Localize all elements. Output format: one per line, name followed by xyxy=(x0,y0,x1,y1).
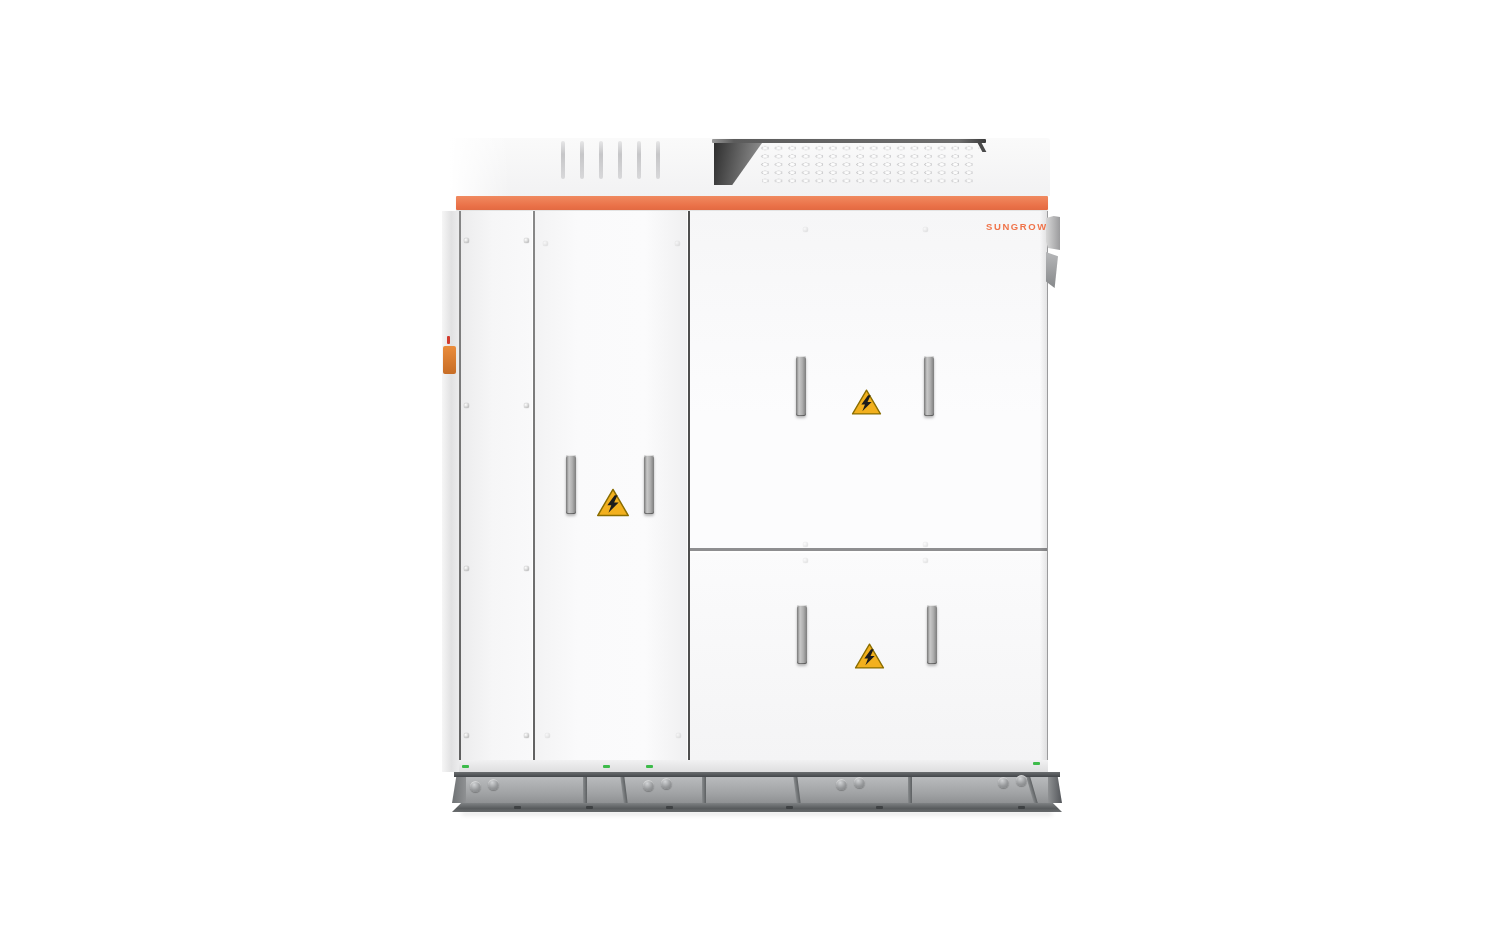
door-handle xyxy=(644,455,654,514)
vent-slat xyxy=(637,141,641,179)
green-indicator-mark xyxy=(1033,762,1040,765)
brand-logo: SUNGROW xyxy=(986,221,1044,231)
grille-shadow-wedge xyxy=(714,143,762,185)
side-red-marker xyxy=(447,336,450,344)
door-handle xyxy=(927,605,937,664)
flange-slot xyxy=(786,806,793,809)
high-voltage-warning-icon xyxy=(851,388,882,416)
bolt-hole xyxy=(998,777,1009,788)
screw-icon xyxy=(923,542,928,547)
product-render: SUNGROW xyxy=(0,0,1500,940)
base-rib xyxy=(702,777,706,803)
roof-left-fade xyxy=(450,138,510,196)
flange-slot xyxy=(586,806,593,809)
screw-icon xyxy=(676,733,681,738)
hinge-bracket xyxy=(1046,216,1060,250)
base-ground-shadow xyxy=(462,812,1052,815)
green-indicator-mark xyxy=(462,765,469,768)
door-handle xyxy=(797,605,807,664)
grille-top-edge xyxy=(712,139,986,143)
accent-strip xyxy=(456,196,1048,210)
hinge-bracket xyxy=(1046,252,1058,288)
right-edge-line xyxy=(1047,211,1048,762)
base-right-end xyxy=(1048,777,1062,803)
screw-icon xyxy=(803,558,808,563)
bolt-hole xyxy=(643,780,654,791)
side-cable-gland xyxy=(443,346,456,374)
left-service-panel xyxy=(460,211,532,762)
screw-icon xyxy=(923,227,928,232)
screw-icon xyxy=(923,558,928,563)
screw-icon xyxy=(675,241,680,246)
screw-icon xyxy=(524,238,529,243)
screw-icon xyxy=(543,241,548,246)
vent-slat xyxy=(599,141,603,179)
base-bottom-flange xyxy=(452,803,1062,812)
panel-seam-left xyxy=(459,211,461,762)
high-voltage-warning-icon xyxy=(854,642,885,670)
screw-icon xyxy=(524,566,529,571)
screw-icon xyxy=(464,733,469,738)
door-handle xyxy=(566,455,576,514)
vent-slat xyxy=(561,141,565,179)
flange-slot xyxy=(1018,806,1025,809)
cabinet-bottom-edge xyxy=(459,760,1048,772)
bolt-hole xyxy=(661,778,672,789)
bolt-hole xyxy=(470,781,481,792)
upper-right-door xyxy=(690,211,1048,548)
bolt-hole xyxy=(854,777,865,788)
screw-icon xyxy=(464,403,469,408)
green-indicator-mark xyxy=(646,765,653,768)
roof-vent-grille xyxy=(700,139,992,186)
vent-slat xyxy=(580,141,584,179)
high-voltage-warning-icon xyxy=(596,487,630,518)
screw-icon xyxy=(803,542,808,547)
screw-icon xyxy=(803,227,808,232)
base-skid xyxy=(452,772,1062,814)
vent-slat xyxy=(618,141,622,179)
panel-seam-mid-right xyxy=(688,211,691,762)
flange-slot xyxy=(876,806,883,809)
grille-perforations xyxy=(758,144,980,184)
door-handle xyxy=(796,356,806,416)
flange-slot xyxy=(514,806,521,809)
screw-icon xyxy=(524,733,529,738)
panel-seam-mid-left xyxy=(533,211,535,762)
screw-icon xyxy=(545,733,550,738)
screw-icon xyxy=(464,238,469,243)
base-rib xyxy=(583,777,587,803)
base-rib xyxy=(908,777,912,803)
base-face xyxy=(464,777,1050,803)
screw-icon xyxy=(524,403,529,408)
green-indicator-mark xyxy=(603,765,610,768)
flange-slot xyxy=(666,806,673,809)
cabinet-left-side xyxy=(442,211,459,772)
door-handle xyxy=(924,356,934,416)
vent-slat xyxy=(656,141,660,179)
right-door-divider xyxy=(690,548,1048,551)
bolt-hole xyxy=(488,779,499,790)
screw-icon xyxy=(464,566,469,571)
roof-vent-slats xyxy=(561,141,663,179)
bolt-hole xyxy=(836,779,847,790)
base-left-end xyxy=(452,777,466,803)
bolt-hole xyxy=(1016,775,1027,786)
